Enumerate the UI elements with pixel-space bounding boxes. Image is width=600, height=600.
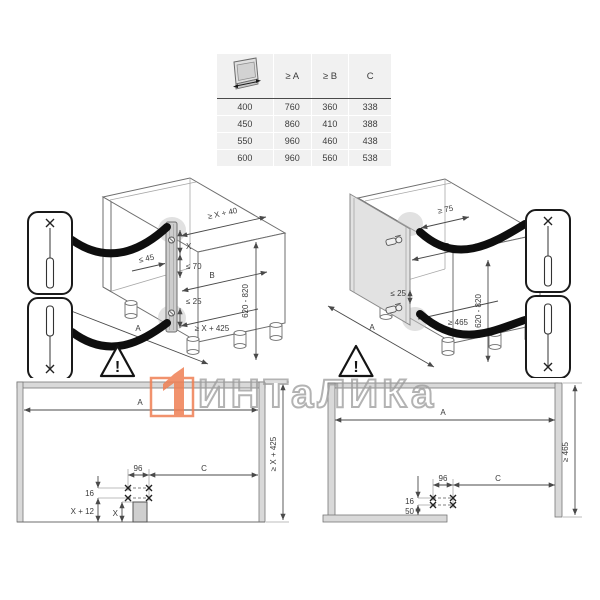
dim-16: 16: [405, 497, 414, 506]
table-header-c: C: [349, 54, 391, 99]
instruction-sheet: ≥ A ≥ B C 400 760 360 338 450 860 410 38…: [0, 0, 600, 600]
callout-band-top: [72, 227, 167, 253]
table-row: 600 960 560 538: [217, 150, 391, 167]
cell-b: 460: [311, 133, 349, 150]
rail-screw-top: [169, 237, 175, 243]
cell-b: 360: [311, 99, 349, 116]
dim-50: 50: [405, 507, 414, 516]
dim-x12: X + 12: [71, 507, 95, 516]
dim-height-range: 620 - 820: [474, 294, 483, 328]
dim-max45: ≤ 45: [138, 252, 156, 264]
dim-16: 16: [85, 489, 94, 498]
table-row: 400 760 360 338: [217, 99, 391, 116]
plan-view-rail-diagram: A ≥ X + 425 96 C 16 X + 12 X: [10, 374, 300, 526]
cabinet-rail-isometric-diagram: ≥ X + 40 X ≤ 70 ≤ 45 B ≤ 25 ≥ X + 425 A …: [14, 170, 296, 378]
table-header-a: ≥ A: [273, 54, 311, 99]
cell-width: 400: [217, 99, 273, 116]
cell-a: 860: [273, 116, 311, 133]
callout-detail-bottom: [526, 296, 570, 378]
dim-96: 96: [439, 474, 448, 483]
cell-width: 600: [217, 150, 273, 167]
dimension-spec-table: ≥ A ≥ B C 400 760 360 338 450 860 410 38…: [217, 54, 391, 167]
table-header-row: ≥ A ≥ B C: [217, 54, 391, 99]
callout-detail-top: [28, 212, 72, 294]
callout-detail-bottom: [28, 298, 72, 378]
callout-detail-top: [526, 210, 570, 292]
door-plan-bar: [323, 515, 447, 522]
dim-c: C: [201, 464, 207, 473]
cell-c: 538: [349, 150, 391, 167]
warning-sign: !: [101, 346, 134, 376]
dim-depth: ≥ 465: [561, 441, 570, 462]
dim-c: C: [495, 474, 501, 483]
dim-b: B: [209, 271, 214, 280]
drill-marks: [430, 495, 456, 508]
cell-c: 338: [349, 99, 391, 116]
cell-b: 560: [311, 150, 349, 167]
cell-a: 760: [273, 99, 311, 116]
cell-c: 438: [349, 133, 391, 150]
dim-min-depth: ≥ X + 425: [195, 324, 230, 333]
dim-96: 96: [134, 464, 143, 473]
table-row: 450 860 410 388: [217, 116, 391, 133]
cell-width: 450: [217, 116, 273, 133]
dim-max25: ≤ 25: [390, 289, 406, 298]
cabinet-plan-walls: [323, 383, 562, 522]
table-row: 550 960 460 438: [217, 133, 391, 150]
table-header-b: ≥ B: [311, 54, 349, 99]
dim-a: A: [440, 408, 446, 417]
cabinet-door-isometric-diagram: ≥ 75 B ≤ 25 ≥ 465 620 - 820 A: [306, 170, 588, 378]
dim-a: A: [137, 398, 143, 407]
dim-min465: ≥ 465: [448, 318, 469, 327]
cell-width: 550: [217, 133, 273, 150]
door-width-icon: [223, 55, 267, 95]
dim-x: X: [186, 242, 192, 251]
cell-a: 960: [273, 150, 311, 167]
cell-b: 410: [311, 116, 349, 133]
rail-screw-bottom: [169, 310, 175, 316]
dimensions: A ≥ X + 425 96 C 16 X + 12 X: [24, 382, 289, 522]
table-header-icon-cell: [217, 54, 273, 99]
drill-marks: [125, 485, 152, 501]
dim-a: A: [369, 323, 375, 332]
cell-c: 388: [349, 116, 391, 133]
cell-a: 960: [273, 133, 311, 150]
dim-depth: ≥ X + 425: [269, 436, 278, 471]
plan-view-door-diagram: A ≥ 465 96 C 16 50: [318, 374, 596, 526]
warning-sign: !: [340, 346, 373, 376]
dim-max25: ≤ 25: [186, 297, 202, 306]
dimensions: A ≥ 465 96 C 16 50: [335, 383, 582, 517]
vertical-rail: [166, 222, 177, 332]
dim-x: X: [113, 509, 119, 518]
dim-max70: ≤ 70: [186, 262, 202, 271]
dim-a: A: [135, 324, 141, 333]
dim-height-range: 620 - 820: [241, 284, 250, 318]
rail-cross-section: [133, 502, 147, 522]
